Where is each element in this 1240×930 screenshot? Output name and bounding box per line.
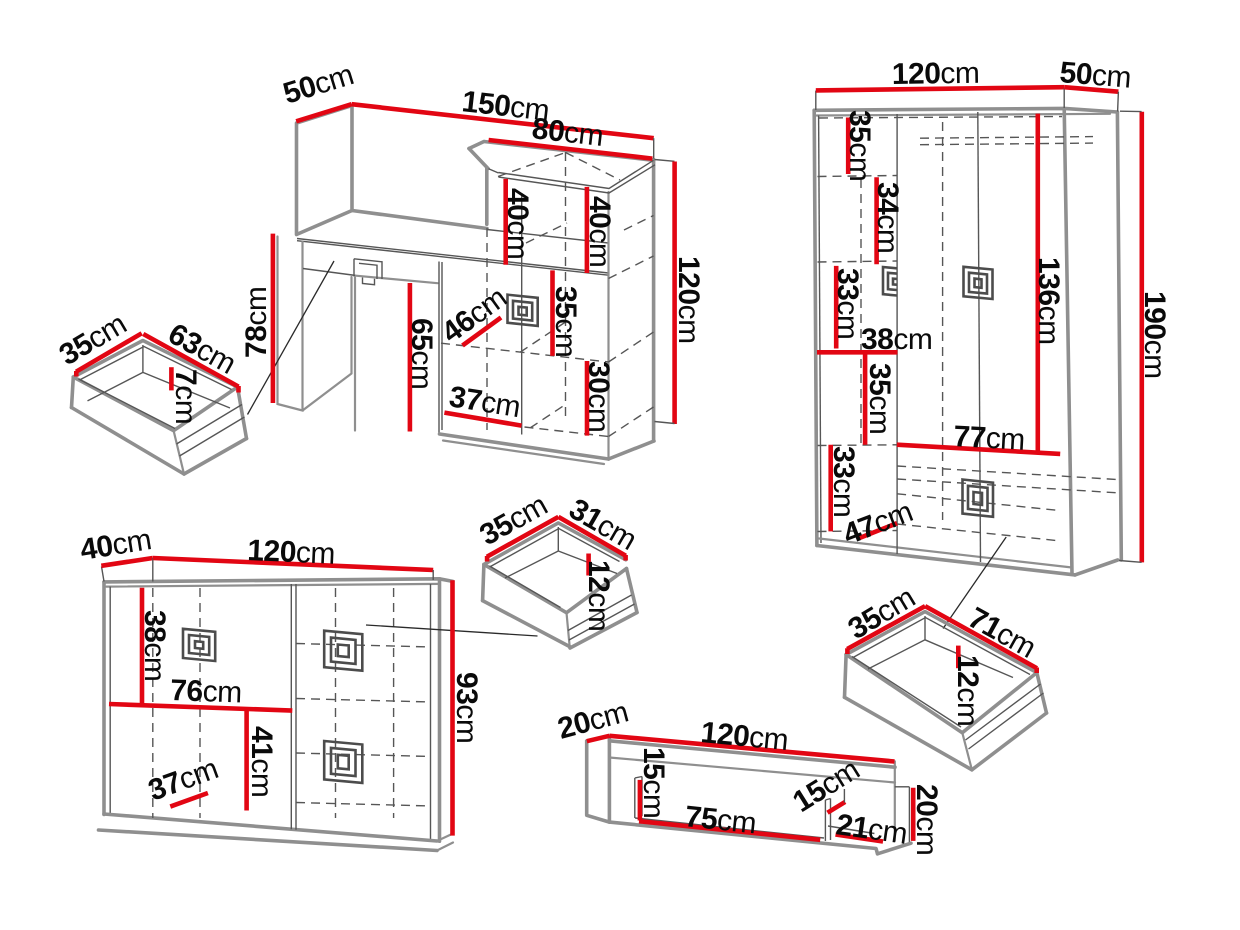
svg-text:93cm: 93cm (450, 672, 483, 743)
svg-text:65cm: 65cm (405, 318, 438, 389)
svg-text:20cm: 20cm (910, 784, 943, 855)
svg-text:33cm: 33cm (827, 446, 860, 517)
svg-text:38cm: 38cm (861, 323, 932, 356)
svg-text:7cm: 7cm (169, 369, 202, 424)
svg-text:40cm: 40cm (583, 196, 616, 267)
svg-text:12cm: 12cm (582, 560, 615, 631)
svg-text:33cm: 33cm (831, 268, 864, 339)
svg-text:38cm: 38cm (138, 610, 171, 681)
svg-text:40cm: 40cm (501, 188, 534, 259)
svg-text:120cm: 120cm (672, 256, 705, 344)
svg-text:35cm: 35cm (863, 363, 896, 434)
svg-text:41cm: 41cm (245, 726, 278, 797)
svg-text:120cm: 120cm (892, 57, 980, 91)
svg-text:15cm: 15cm (637, 747, 670, 818)
svg-text:76cm: 76cm (170, 674, 242, 709)
svg-text:190cm: 190cm (1138, 291, 1171, 379)
svg-text:50cm: 50cm (1058, 56, 1132, 95)
svg-text:120cm: 120cm (247, 534, 336, 571)
svg-text:30cm: 30cm (582, 361, 615, 432)
svg-text:35cm: 35cm (549, 286, 582, 357)
svg-text:77cm: 77cm (953, 420, 1026, 457)
svg-text:12cm: 12cm (951, 655, 984, 726)
svg-text:78cm: 78cm (240, 287, 273, 358)
svg-text:136cm: 136cm (1032, 257, 1065, 345)
svg-text:34cm: 34cm (871, 182, 904, 253)
svg-text:35cm: 35cm (843, 110, 876, 181)
